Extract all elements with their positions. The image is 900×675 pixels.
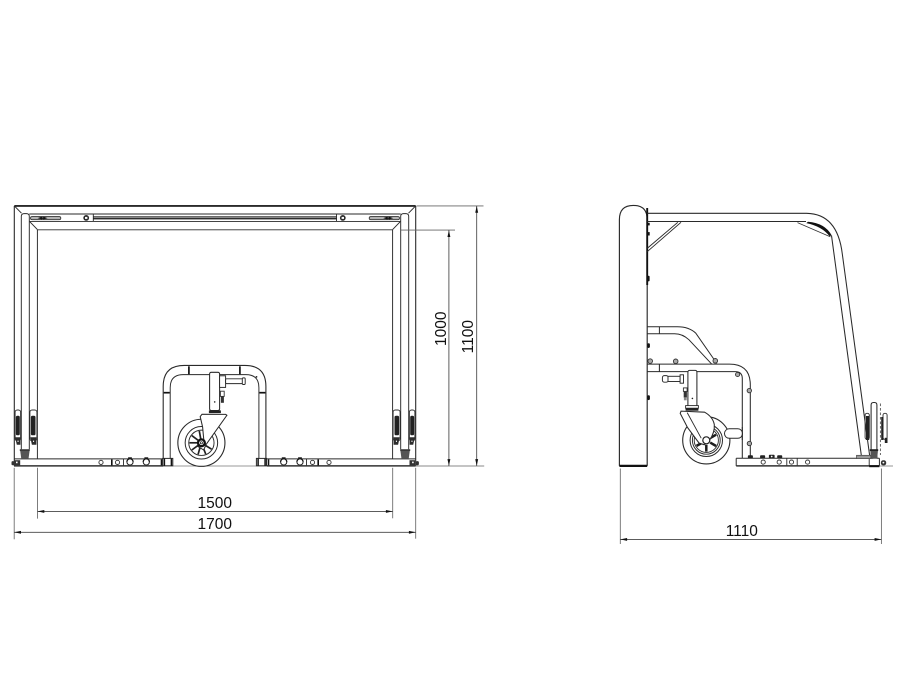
svg-text:1100: 1100 <box>460 320 477 354</box>
svg-text:1110: 1110 <box>726 523 759 540</box>
svg-text:1700: 1700 <box>198 516 233 533</box>
svg-text:1500: 1500 <box>198 495 233 512</box>
svg-text:1000: 1000 <box>433 311 450 346</box>
